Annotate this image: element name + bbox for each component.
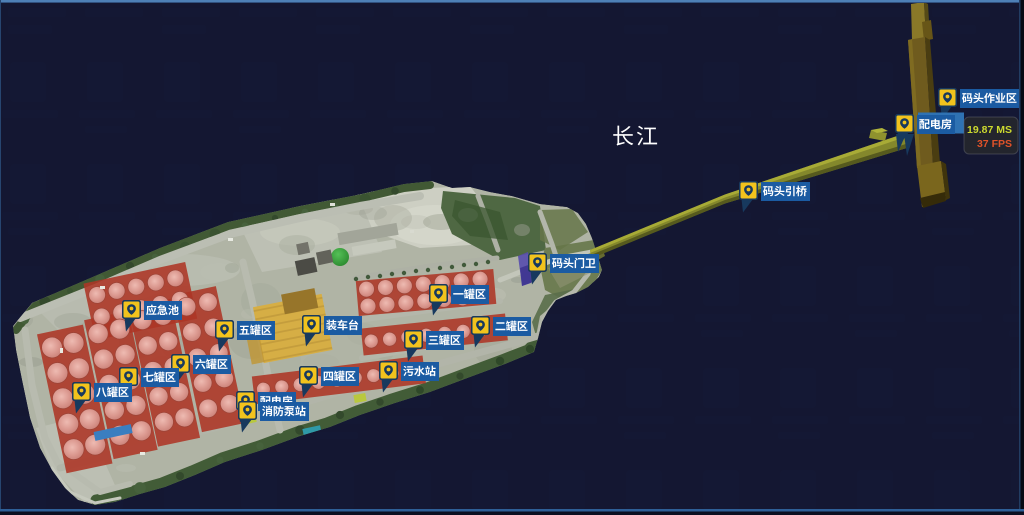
svg-text:19.87 MS: 19.87 MS [967, 124, 1012, 136]
svg-text:37 FPS: 37 FPS [977, 138, 1012, 150]
